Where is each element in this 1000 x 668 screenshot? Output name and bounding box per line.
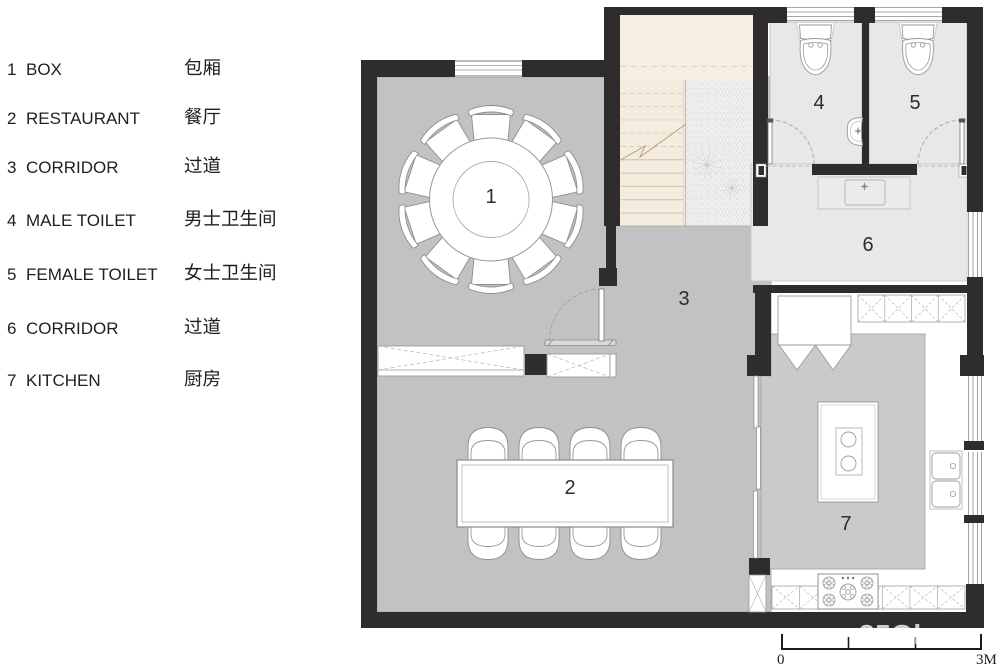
svg-text:FEMALE TOILET: FEMALE TOILET — [26, 265, 158, 284]
svg-text:1: 1 — [485, 186, 496, 208]
svg-text:3: 3 — [678, 288, 689, 310]
svg-text:CORRIDOR: CORRIDOR — [26, 158, 119, 177]
svg-text:3M: 3M — [976, 652, 997, 668]
svg-text:KITCHEN: KITCHEN — [26, 371, 101, 390]
svg-text:7: 7 — [7, 371, 16, 390]
svg-text:0: 0 — [777, 652, 785, 668]
svg-text:7: 7 — [840, 513, 851, 535]
svg-text:4: 4 — [7, 211, 16, 230]
svg-text:2: 2 — [564, 477, 575, 499]
svg-text:CORRIDOR: CORRIDOR — [26, 319, 119, 338]
svg-text:RESTAURANT: RESTAURANT — [26, 109, 140, 128]
svg-text:35Gh: 35Gh — [859, 619, 931, 650]
svg-text:6: 6 — [7, 319, 16, 338]
svg-text:5: 5 — [7, 265, 16, 284]
svg-text:4: 4 — [813, 92, 824, 114]
svg-text:5: 5 — [909, 92, 920, 114]
svg-text:BOX: BOX — [26, 60, 62, 79]
svg-text:1: 1 — [7, 60, 16, 79]
svg-text:6: 6 — [862, 234, 873, 256]
svg-text:MALE TOILET: MALE TOILET — [26, 211, 136, 230]
svg-text:2: 2 — [7, 109, 16, 128]
svg-text:3: 3 — [7, 158, 16, 177]
